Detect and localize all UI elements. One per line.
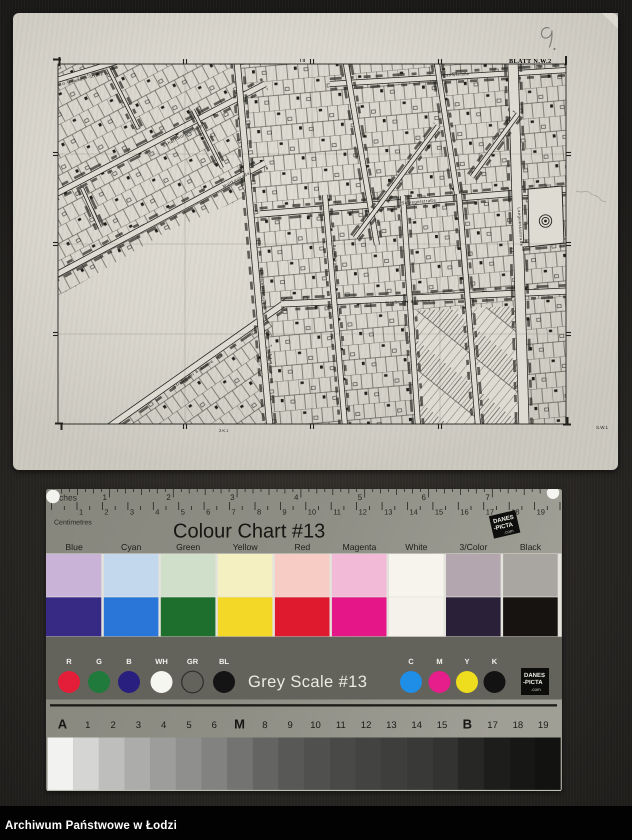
svg-text:K: K	[492, 657, 498, 666]
svg-text:2: 2	[104, 508, 108, 517]
svg-text:6: 6	[422, 493, 427, 502]
svg-text:9: 9	[282, 508, 286, 517]
svg-text:2.K.1: 2.K.1	[219, 428, 229, 433]
svg-text:6: 6	[206, 508, 210, 517]
svg-text:Y: Y	[464, 657, 469, 666]
svg-text:6: 6	[212, 720, 217, 731]
svg-text:B: B	[463, 717, 472, 732]
svg-text:2: 2	[110, 720, 115, 731]
svg-text:3: 3	[230, 493, 235, 502]
svg-text:8: 8	[262, 720, 267, 731]
svg-text:Black: Black	[520, 542, 542, 552]
svg-text:Yellow: Yellow	[233, 542, 259, 552]
svg-text:5: 5	[358, 493, 363, 502]
svg-text:19: 19	[538, 720, 549, 731]
svg-text:14: 14	[410, 508, 418, 517]
svg-text:BLATT N.W.2: BLATT N.W.2	[509, 58, 552, 65]
svg-text:BL: BL	[219, 657, 229, 666]
svg-text:4: 4	[155, 508, 159, 517]
svg-text:13: 13	[386, 720, 397, 731]
svg-text:7: 7	[232, 508, 236, 517]
svg-text:WH: WH	[155, 657, 168, 666]
svg-text:8: 8	[257, 508, 261, 517]
svg-text:-PICTA: -PICTA	[523, 679, 543, 686]
svg-text:5: 5	[186, 720, 191, 731]
svg-text:White: White	[405, 542, 427, 552]
svg-text:3: 3	[130, 508, 134, 517]
svg-text:Colour Chart #13: Colour Chart #13	[173, 521, 325, 543]
svg-text:11: 11	[333, 508, 341, 517]
svg-text:19: 19	[537, 508, 545, 517]
svg-text:12: 12	[359, 508, 367, 517]
svg-text:16: 16	[460, 508, 468, 517]
svg-text:17: 17	[487, 720, 498, 731]
svg-text:Green: Green	[176, 542, 200, 552]
svg-text:C: C	[408, 657, 414, 666]
svg-text:R: R	[66, 657, 72, 666]
svg-text:4: 4	[294, 493, 299, 502]
svg-text:17: 17	[486, 508, 494, 517]
svg-text:Blue: Blue	[65, 542, 83, 552]
svg-text:M: M	[234, 717, 245, 732]
svg-text:Magenta: Magenta	[342, 542, 376, 552]
svg-text:7: 7	[485, 493, 490, 502]
svg-text:Cyan: Cyan	[121, 542, 141, 552]
svg-text:2: 2	[166, 493, 171, 502]
svg-text:A: A	[58, 717, 68, 732]
svg-text:I II: I II	[300, 58, 305, 63]
svg-text:3/Color: 3/Color	[459, 542, 487, 552]
svg-text:Grey Scale #13: Grey Scale #13	[248, 673, 367, 691]
svg-text:4: 4	[161, 720, 166, 731]
svg-text:G: G	[96, 657, 102, 666]
svg-text:Red: Red	[294, 542, 310, 552]
svg-text:.com: .com	[531, 687, 541, 692]
svg-text:13: 13	[384, 508, 392, 517]
svg-text:11: 11	[336, 720, 346, 731]
svg-text:Centimetres: Centimetres	[54, 519, 92, 527]
svg-text:ches: ches	[59, 493, 77, 503]
svg-text:15: 15	[437, 720, 448, 731]
svg-text:15: 15	[435, 508, 443, 517]
svg-text:B: B	[126, 657, 132, 666]
svg-text:18: 18	[513, 720, 524, 731]
svg-text:5: 5	[181, 508, 185, 517]
svg-text:DANES: DANES	[524, 672, 545, 679]
svg-text:10: 10	[310, 720, 321, 731]
svg-text:M: M	[436, 657, 442, 666]
svg-text:10: 10	[308, 508, 316, 517]
svg-text:1: 1	[85, 720, 90, 731]
svg-text:12: 12	[361, 720, 372, 731]
svg-text:1: 1	[103, 493, 108, 502]
svg-text:GR: GR	[187, 657, 199, 666]
svg-text:9: 9	[288, 720, 293, 731]
svg-text:3: 3	[136, 720, 141, 731]
svg-text:S.W.1: S.W.1	[596, 425, 609, 430]
svg-text:14: 14	[411, 720, 422, 731]
svg-text:1: 1	[79, 508, 83, 517]
